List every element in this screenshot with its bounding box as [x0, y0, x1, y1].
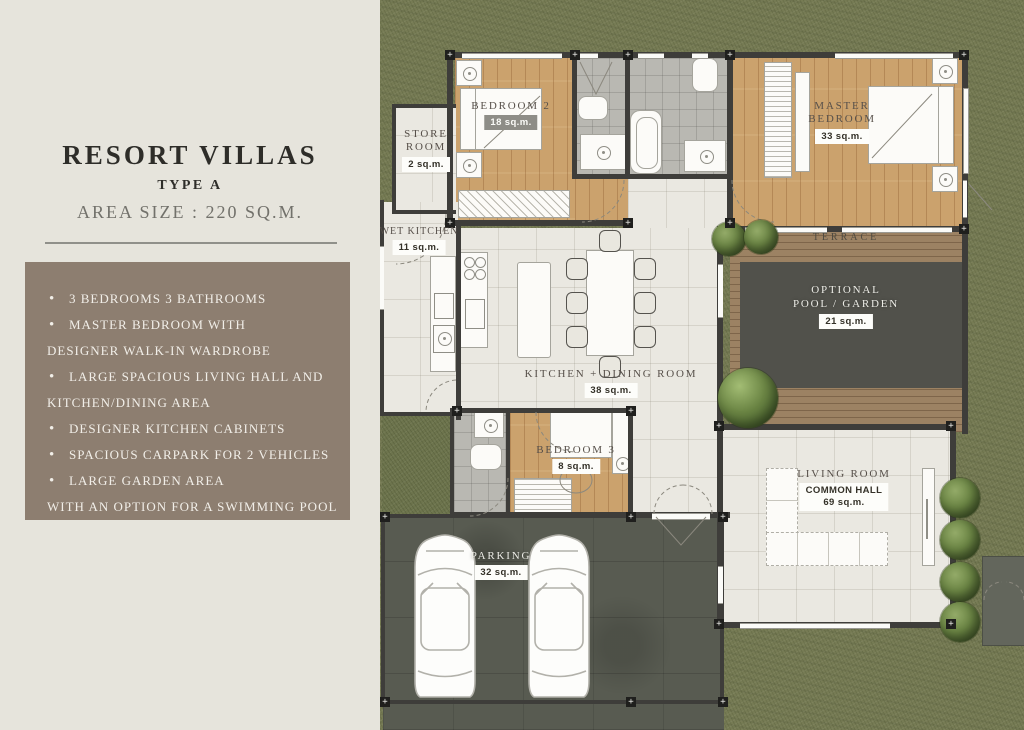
- feature-item: LARGE GARDEN AREA: [25, 468, 350, 494]
- bush: [940, 478, 980, 518]
- area-size-line: AREA SIZE : 220 SQ.M.: [0, 202, 380, 223]
- tv-cabinet: [922, 468, 935, 566]
- column-marker: [718, 697, 728, 707]
- room-area-badge: 32 sq.m.: [474, 565, 527, 580]
- room-area-badge: 21 sq.m.: [819, 314, 872, 329]
- vanity-sink: [684, 140, 726, 172]
- window: [692, 53, 708, 59]
- nightstand: [932, 166, 958, 192]
- brochure-page: BEDROOM 2 18 sq.m. STORE ROOM 2 sq.m. MA…: [0, 0, 1024, 730]
- room-name-line1: OPTIONAL: [811, 284, 880, 296]
- toilet: [578, 96, 608, 120]
- vanity-sink: [580, 134, 626, 170]
- sink: [465, 299, 485, 329]
- column-marker: [959, 50, 969, 60]
- left-panel: RESORT VILLAS TYPE A AREA SIZE : 220 SQ.…: [0, 0, 380, 730]
- floor-plan: BEDROOM 2 18 sq.m. STORE ROOM 2 sq.m. MA…: [380, 0, 1024, 730]
- room-area-badge: 11 sq.m.: [393, 240, 446, 255]
- wet-kitchen-counter: [430, 256, 456, 372]
- wall-segment: [381, 514, 385, 704]
- wall-segment: [572, 52, 577, 179]
- door-opening: [718, 566, 723, 604]
- pool-label: OPTIONAL POOL / GARDEN 21 sq.m.: [793, 284, 899, 329]
- window: [835, 53, 953, 59]
- room-name: WET KITCHEN: [380, 226, 459, 237]
- column-marker: [445, 50, 455, 60]
- room-area: 69 sq.m.: [806, 497, 883, 509]
- room-area-badge: 2 sq.m.: [402, 157, 450, 172]
- terrace-label: TERRACE: [813, 232, 880, 243]
- room-name: MASTER BEDROOM: [799, 100, 885, 126]
- column-marker: [626, 406, 636, 416]
- gate-pad: [982, 556, 1024, 646]
- room-area-badge: 33 sq.m.: [815, 129, 868, 144]
- door-opening: [963, 180, 967, 218]
- master-bedroom-label: MASTER BEDROOM 33 sq.m.: [799, 100, 885, 144]
- wet-kitchen-label: WET KITCHEN 11 sq.m.: [380, 226, 459, 255]
- bedroom2-entry-floor: [575, 178, 628, 222]
- window: [740, 623, 890, 629]
- nightstand: [456, 60, 482, 86]
- column-marker: [946, 619, 956, 629]
- room-area-badge: 8 sq.m.: [552, 459, 600, 474]
- column-marker: [725, 218, 735, 228]
- walk-in-wardrobe: [764, 62, 792, 178]
- wall-segment: [392, 210, 456, 214]
- room-name: LIVING ROOM: [797, 468, 890, 480]
- nightstand: [932, 58, 958, 84]
- feature-item: DESIGNER WALK-IN WARDROBE: [25, 338, 350, 364]
- kitchen-dining-label: KITCHEN + DINING ROOM 38 sq.m.: [525, 368, 698, 398]
- feature-item: 3 BEDROOMS 3 BATHROOMS: [25, 286, 350, 312]
- wall-segment: [628, 408, 633, 516]
- wall-segment: [381, 700, 724, 704]
- page-subtitle: TYPE A: [0, 178, 380, 194]
- kitchen-island: [517, 262, 551, 358]
- garden-patch: [382, 412, 454, 516]
- wall-segment: [381, 514, 451, 518]
- feature-list: 3 BEDROOMS 3 BATHROOMS MASTER BEDROOM WI…: [25, 286, 350, 520]
- feature-item: DESIGNER KITCHEN CABINETS: [25, 416, 350, 442]
- bedroom2-label: BEDROOM 2 18 sq.m.: [471, 100, 550, 130]
- wall-segment: [447, 220, 631, 226]
- rug: [514, 478, 572, 516]
- wall-segment: [506, 408, 510, 516]
- bed-headboard: [938, 86, 954, 164]
- column-marker: [959, 224, 969, 234]
- sofa: [766, 468, 798, 534]
- sofa: [766, 532, 888, 566]
- wardrobe: [458, 190, 570, 218]
- door-opening: [718, 264, 723, 318]
- column-marker: [570, 50, 580, 60]
- room-name: PARKING: [471, 550, 531, 562]
- hall-floor: [628, 178, 730, 230]
- parking-label: PARKING 32 sq.m.: [471, 550, 531, 580]
- dining-table: [586, 250, 634, 356]
- living-room-floor: [720, 428, 950, 628]
- column-marker: [623, 50, 633, 60]
- page-title: RESORT VILLAS: [0, 140, 380, 171]
- store-room-label: STORE ROOM 2 sq.m.: [383, 128, 469, 172]
- feature-item: KITCHEN/DINING AREA: [25, 390, 350, 416]
- wall-segment: [572, 174, 732, 179]
- column-marker: [714, 421, 724, 431]
- room-name: BEDROOM 3: [536, 444, 615, 456]
- column-marker: [714, 619, 724, 629]
- bathtub: [630, 110, 662, 174]
- window: [963, 88, 969, 174]
- wall-segment: [720, 514, 724, 704]
- column-marker: [452, 406, 462, 416]
- column-marker: [946, 421, 956, 431]
- bush: [940, 562, 980, 602]
- wall-segment: [727, 52, 733, 230]
- feature-item: LARGE SPACIOUS LIVING HALL AND: [25, 364, 350, 390]
- feature-box: 3 BEDROOMS 3 BATHROOMS MASTER BEDROOM WI…: [25, 262, 350, 520]
- feature-item: SPACIOUS CARPARK FOR 2 VEHICLES: [25, 442, 350, 468]
- wall-segment: [380, 412, 460, 416]
- column-marker: [626, 697, 636, 707]
- room-name-line2: POOL / GARDEN: [793, 298, 899, 310]
- column-marker: [623, 218, 633, 228]
- common-hall-text: COMMON HALL: [806, 485, 883, 497]
- wall-segment: [450, 408, 454, 516]
- tree: [718, 368, 778, 428]
- divider: [45, 242, 337, 244]
- window: [380, 246, 384, 310]
- wall-segment: [392, 104, 456, 108]
- washer: [433, 325, 455, 353]
- wall-segment: [450, 408, 633, 413]
- feature-item: WITH AN OPTION FOR A SWIMMING POOL: [25, 494, 350, 520]
- toilet: [470, 444, 502, 470]
- window: [580, 53, 598, 59]
- window: [462, 53, 562, 59]
- sink: [434, 293, 454, 319]
- room-area-badge: 18 sq.m.: [484, 115, 537, 130]
- column-marker: [626, 512, 636, 522]
- bush: [744, 220, 778, 254]
- wall-segment: [625, 52, 630, 179]
- room-name: STORE ROOM: [383, 128, 469, 154]
- column-marker: [380, 697, 390, 707]
- bush: [940, 520, 980, 560]
- living-room-label: LIVING ROOM COMMON HALL 69 sq.m.: [797, 468, 890, 511]
- room-name: BEDROOM 2: [471, 100, 550, 112]
- column-marker: [725, 50, 735, 60]
- room-area-badge: COMMON HALL 69 sq.m.: [800, 483, 889, 511]
- toilet: [692, 58, 718, 92]
- feature-item: MASTER BEDROOM WITH: [25, 312, 350, 338]
- kitchen-counter: [460, 252, 488, 348]
- room-name: TERRACE: [813, 232, 880, 243]
- window: [638, 53, 664, 59]
- parking-slab: [383, 518, 724, 730]
- vanity-sink: [474, 412, 504, 438]
- column-marker: [380, 512, 390, 522]
- bedroom3-label: BEDROOM 3 8 sq.m.: [536, 444, 615, 474]
- room-area-badge: 38 sq.m.: [584, 383, 637, 398]
- entry-door: [652, 513, 710, 520]
- column-marker: [718, 512, 728, 522]
- room-name: KITCHEN + DINING ROOM: [525, 368, 698, 380]
